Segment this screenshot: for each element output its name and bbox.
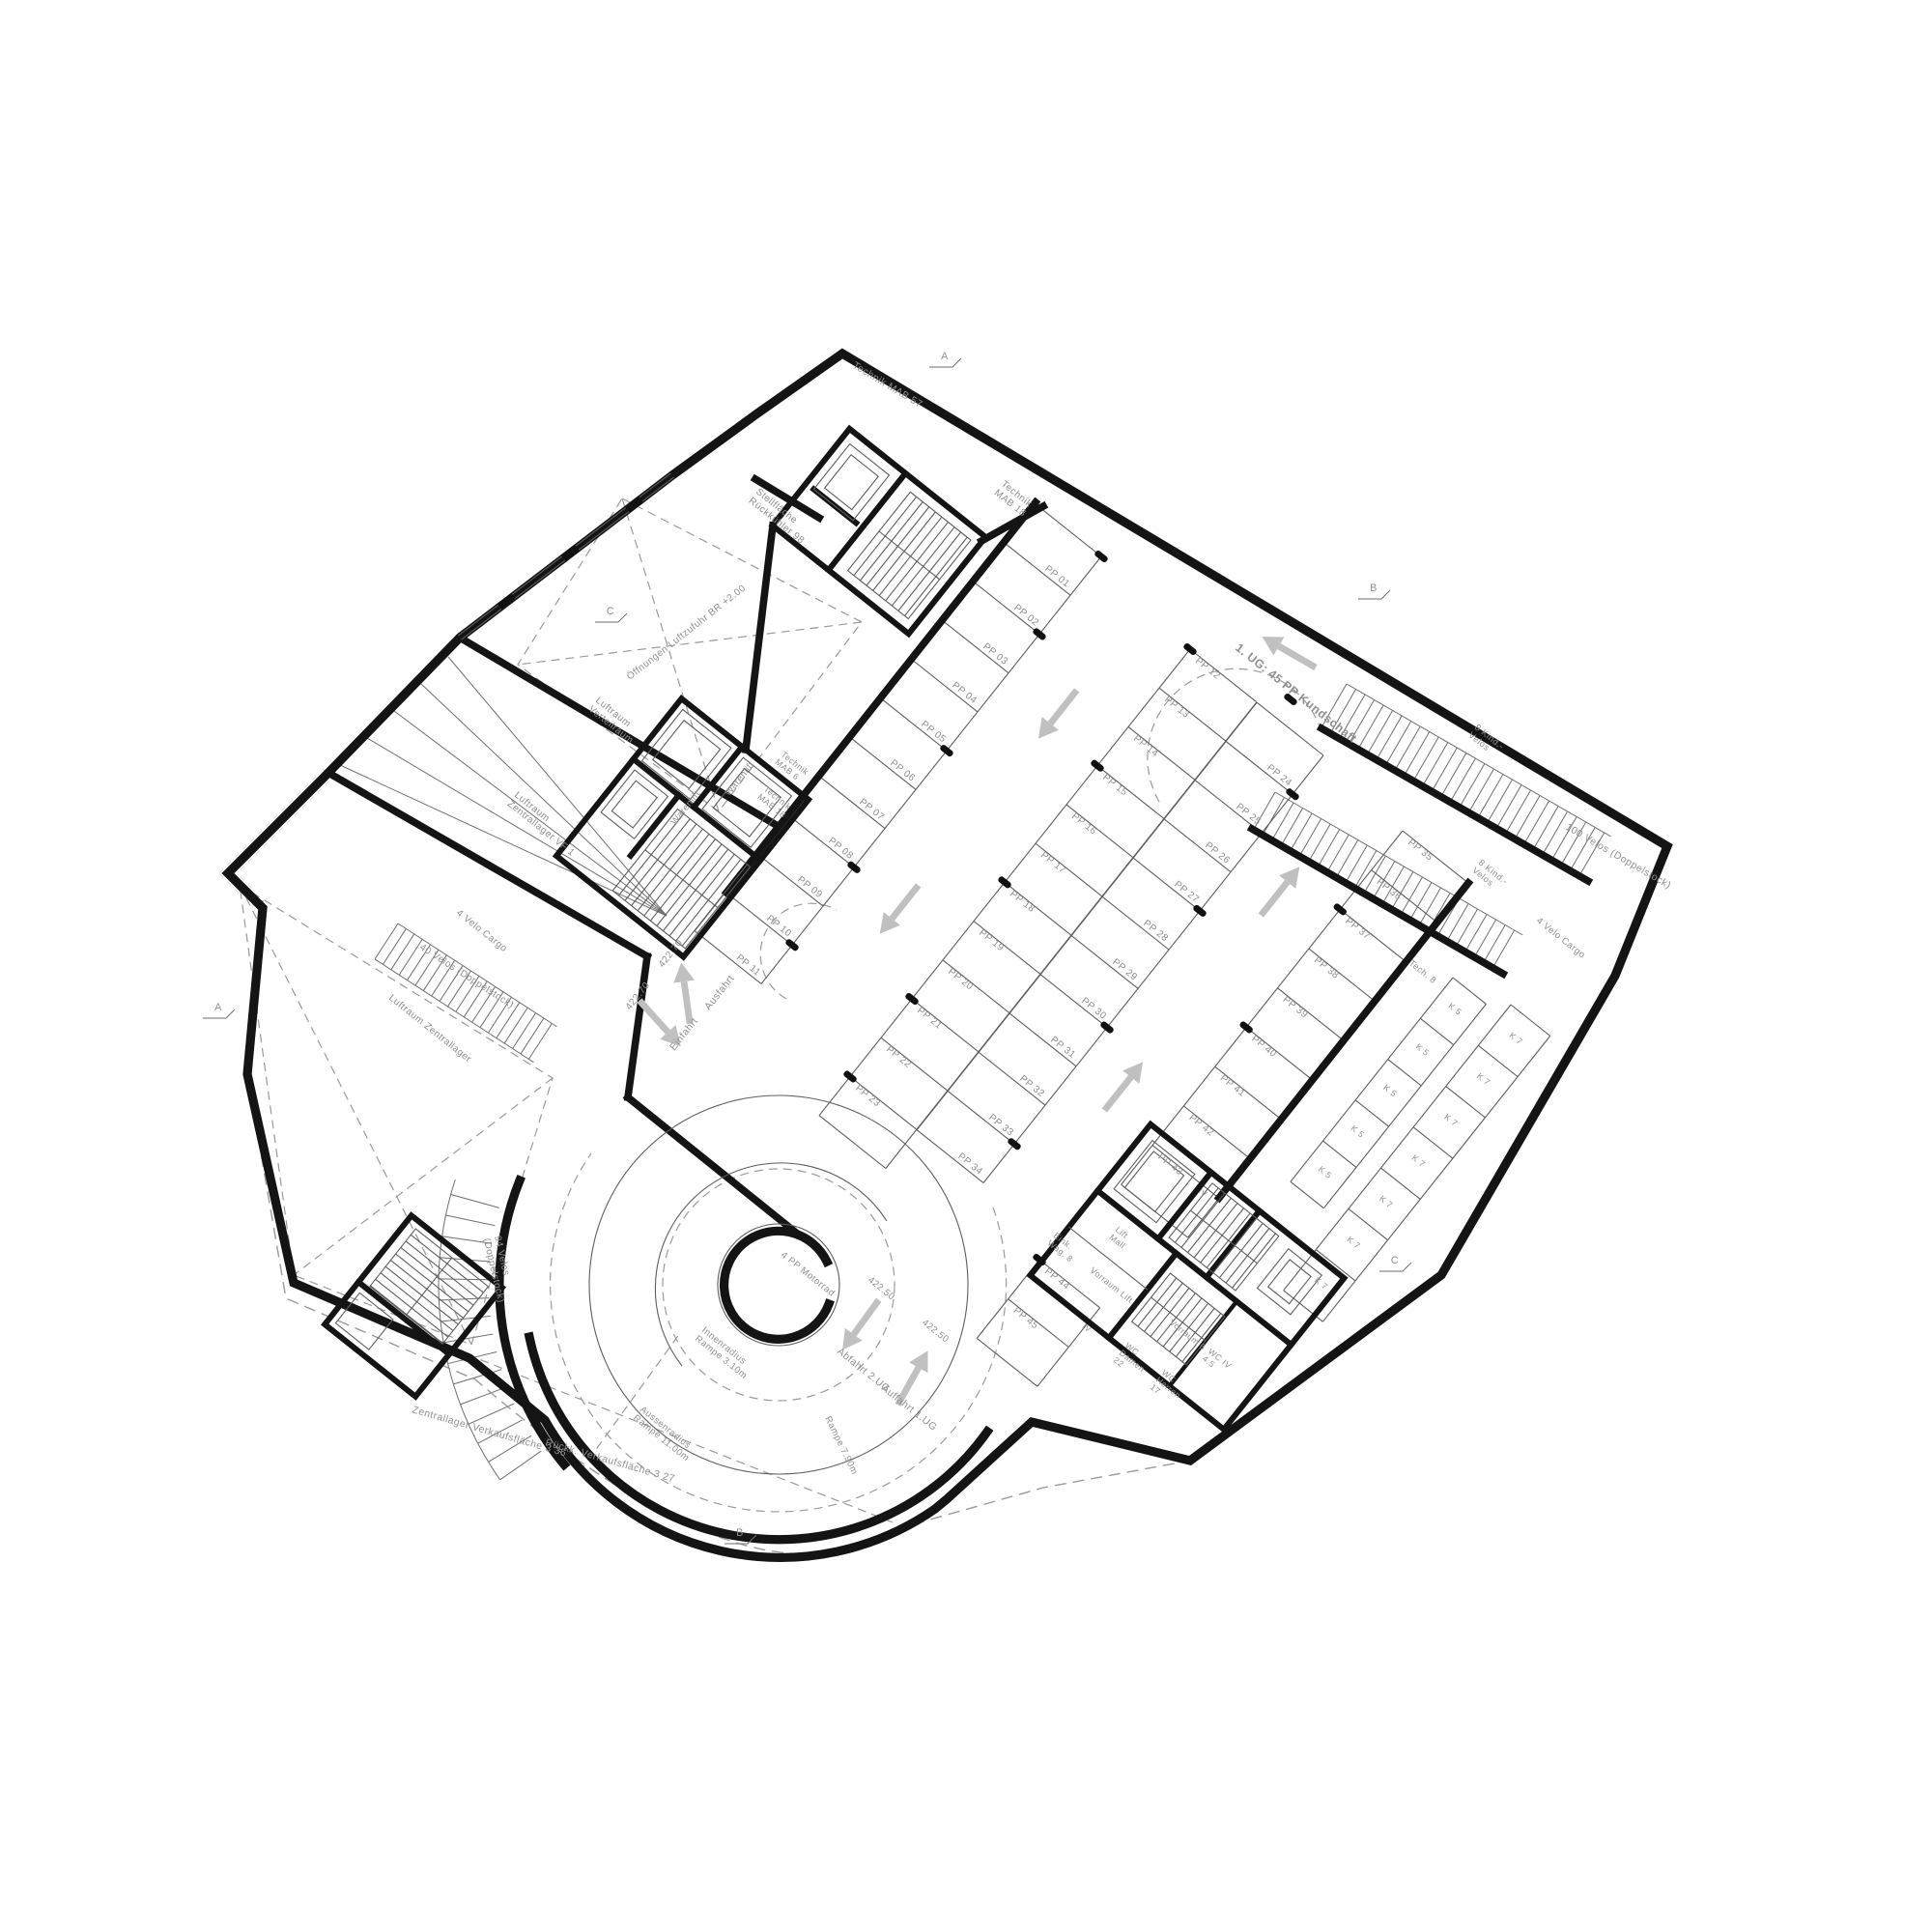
parking-stall-label: PP 20 [946,966,975,992]
parking-stall-label: PP 23 [853,1083,882,1109]
storage-divider [1381,1168,1421,1199]
bike-hatch-line [1270,803,1293,843]
ramp-enclosure-wall [628,1097,796,1233]
parking-stall-label: PP 41 [1218,1073,1247,1099]
line [1279,646,1316,668]
parking-stall-label: PP 17 [1038,850,1067,876]
void-outline [518,498,862,811]
parking-stall-label: PP 35 [1406,838,1435,864]
parking-stall-label: PP 22 [884,1044,913,1070]
stall-divider [1226,741,1293,794]
area-label: Ausfahrt [703,974,737,1012]
stall-divider [756,853,823,906]
bike-hatch-line [1413,737,1438,781]
bike-hatch-line [1551,817,1577,861]
storage-cell-label: K 7 [1345,1235,1362,1251]
bike-hatch-line [1473,920,1496,960]
bike-hatch-line [1280,809,1303,849]
stall-divider [973,582,1039,635]
storage-cell-label: K 5 [1317,1164,1334,1180]
bike-hatch-line [1307,824,1330,865]
bike-hatch-line [1450,758,1475,802]
line [1261,882,1287,915]
storage-divider [1420,1018,1453,1044]
bike-hatch-line [1478,775,1503,818]
bike-hatch-line [1524,801,1549,844]
storage-divider [1446,1087,1486,1118]
bike-hatch-line [1468,769,1493,812]
line [1050,691,1076,724]
storage-cell-label: K 5 [1350,1123,1367,1140]
wall [746,526,773,750]
area-label: Vorraum Lift [1089,1265,1135,1305]
section-marker-label: A [941,351,949,362]
stall-divider [818,776,885,829]
bike-hatch-line [1533,807,1558,850]
storage-divider [1478,1045,1518,1076]
arrow-head [670,961,695,983]
storage-divider [1413,1127,1453,1158]
section-marker-label: B [736,1527,744,1539]
bike-hatch-line [1487,780,1512,823]
bike-band-edge [1347,684,1611,837]
stall-divider [1040,975,1107,1028]
bike-hatch-line [1460,764,1485,808]
stair-midline [645,850,718,908]
section-marker: A [929,351,961,367]
ramp-outer-wall [499,1180,564,1464]
wall [631,795,679,856]
line [639,1001,668,1033]
storage-cell-label: K 7 [1378,1194,1395,1210]
section-marker-label: A [214,1002,222,1013]
stall-divider [1009,1013,1076,1066]
parking-stall-label: PP 15 [1100,772,1129,798]
stall-divider [725,892,792,945]
bike-hatch-line [1441,753,1466,797]
bike-hatch-line [1325,835,1349,875]
area-label: Tech. 8 [1407,958,1438,985]
area-label: 422.50 [866,1275,896,1303]
section-marker: C [595,606,627,622]
bike-hatch-line [1432,748,1457,791]
bike-hatch-line [1399,877,1422,918]
bike-hatch-line [1386,722,1411,765]
stall-divider [1071,936,1138,989]
parking-stall-label: PP 14 [1131,733,1160,759]
section-marker: A [203,1002,235,1018]
bike-hatch-line [1262,798,1285,838]
elevator-car [1124,1151,1183,1211]
bike-hatch-line [1377,716,1402,759]
stall-front-line [761,556,1101,983]
stall-divider [917,1130,983,1183]
elevator-car [611,781,657,828]
stall-divider [911,659,978,712]
bike-hatch-line [1463,915,1487,955]
area-label: 4 Velo Cargo [1534,916,1587,961]
storage-divider [1323,1141,1356,1167]
parking-stall-label: PP 16 [1069,811,1098,838]
bike-hatch-line [451,1195,499,1208]
section-marker-label: B [1370,582,1378,594]
bike-hatch-line [1492,930,1515,971]
wall [829,473,906,570]
bike-hatch-line [1395,726,1420,770]
bike-hatch-line [1506,790,1531,834]
direction-arrow-icon [670,961,700,1025]
storage-cell-label: K 7 [1313,1275,1330,1292]
stall-divider [880,697,947,751]
bike-hatch-line [1298,819,1321,860]
wall [1158,1173,1211,1239]
stall-divider [948,1091,1014,1144]
void-diagonal [294,1078,553,1275]
parking-stall-label: PP 18 [1008,889,1037,915]
section-marker: C [1379,1255,1411,1271]
storage-cell-label: K 7 [1442,1112,1460,1128]
bike-hatch-line [1496,785,1521,829]
bike-hatch-line [1317,830,1340,870]
section-marker: B [1358,582,1390,599]
bike-hatch-line [399,939,422,975]
stall-divider [1102,896,1169,950]
bike-hatch-line [375,923,398,959]
stall-divider [979,1052,1045,1105]
parking-stall-label: PP 38 [1312,955,1341,981]
area-label: 4 Velo Cargo [454,908,509,954]
parking-stall-label: PP 45 [1011,1305,1040,1331]
bike-hatch-line [461,1387,508,1405]
bike-hatch-line [1368,711,1393,754]
bike-hatch-line [439,1279,489,1280]
bike-hatch-line [1543,811,1568,855]
bike-hatch-line [1482,925,1505,966]
storage-divider [1388,1060,1421,1086]
arrow-head [909,1346,937,1373]
parking-garage-floor-plan: PP 01PP 02PP 03PP 04PP 05PP 06PP 07PP 08… [0,0,1932,1932]
stall-divider [977,1338,1037,1386]
bike-hatch-line [500,1451,542,1480]
line [854,1300,879,1335]
dashed-construction-lines [240,498,1320,1554]
section-marker-label: C [607,606,614,617]
storage-divider [1316,1250,1355,1281]
entry-ramp-line [367,738,667,916]
bike-hatch-line [504,1008,527,1043]
bike-hatch-line [1405,732,1430,776]
parking-stall-label: PP 42 [1187,1113,1216,1139]
area-label: Öffnungen Luftzufuhr BR +2.00 [624,582,748,683]
stall-divider [787,814,854,867]
line [892,886,918,919]
direction-arrow-icon [1030,684,1085,746]
stall-divider [942,620,1009,673]
bike-hatch-line [1335,840,1358,881]
line [684,981,690,1024]
stall-back-line [917,702,1257,1129]
bike-area-wall [1252,829,1503,974]
direction-arrow-icon [1253,861,1308,923]
entry-ramp-line [340,765,667,916]
parking-stall-label: PP 19 [977,927,1006,953]
bike-hatch-line [445,1215,495,1226]
bike-hatch-line [1289,813,1312,854]
parking-stall-label: PP 39 [1281,994,1310,1020]
area-label: 422.50 [920,1318,951,1346]
stall-divider [1133,858,1200,911]
direction-arrow-icon [1096,1056,1151,1118]
bike-hatch-line [1423,743,1448,786]
parking-stall-label: PP 37 [1343,916,1372,942]
bike-hatch-line [391,934,414,970]
storage-cell-label: K 5 [1381,1083,1399,1099]
bike-hatch-line [1515,796,1540,839]
stair-midline [407,1258,452,1315]
line [1104,1077,1130,1110]
parking-stall-label: PP 43 [1155,1151,1184,1178]
storage-divider [1511,1005,1550,1036]
wall [628,956,647,1097]
bike-hatch-line [521,1018,544,1054]
storage-divider [1355,1100,1388,1126]
bike-hatch-line [1358,705,1383,749]
parking-stall-label: PP 13 [1162,695,1191,721]
area-label: Luftraum Zentrallager [386,993,473,1065]
parking-stall-label: PP 21 [915,1006,944,1032]
storage-cell-label: K 7 [1508,1030,1525,1046]
stall-divider [849,737,916,790]
storage-cell-label: K 5 [1414,1041,1432,1058]
area-label: Technik MAB 57 [850,360,923,411]
storage-cell-label: K 7 [1475,1071,1492,1088]
storage-divider [1349,1208,1388,1239]
arrow-head [1257,627,1284,655]
storage-divider [1453,978,1486,1004]
bike-hatch-line [528,1023,552,1059]
storage-cell-label: K 5 [1446,1001,1463,1017]
stall-divider [1035,503,1101,556]
stall-divider [1004,542,1070,595]
storage-divider [1284,1291,1323,1321]
bike-hatch-line [383,928,406,964]
stall-divider [819,1116,886,1169]
area-label: 100 Velos (Doppelstock) [1564,822,1673,892]
storage-cell-label: K 7 [1410,1152,1428,1169]
direction-arrow-icon [871,879,926,941]
storage-divider [1291,1181,1323,1207]
plan-labels: PP 01PP 02PP 03PP 04PP 05PP 06PP 07PP 08… [386,360,1672,1485]
parking-stall-label: PP 40 [1249,1034,1278,1060]
section-marker-label: C [1391,1255,1399,1266]
bike-hatch-line [1455,909,1478,950]
bike-hatch-line [513,1013,536,1049]
stall-divider [1164,819,1231,872]
